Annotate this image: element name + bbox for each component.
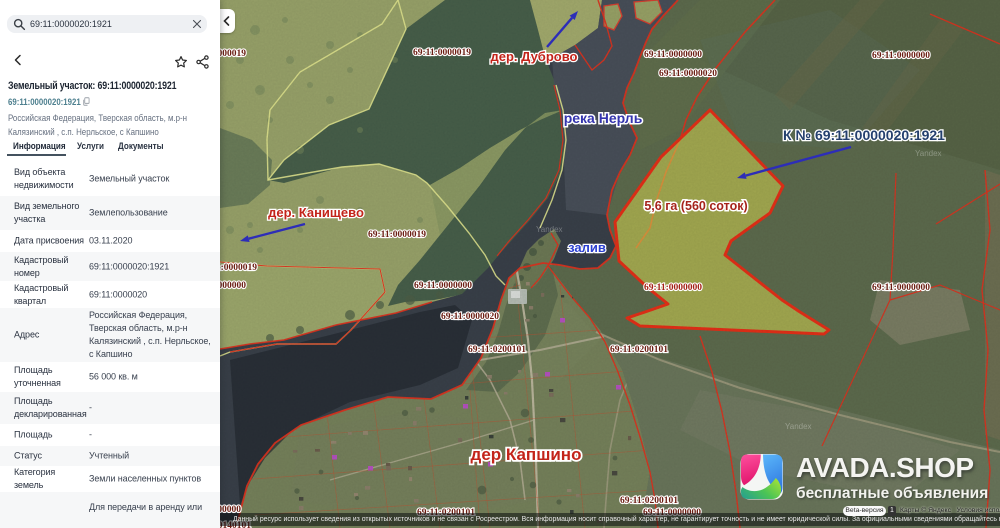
svg-text:69:11:0000000: 69:11:0000000 <box>220 281 246 291</box>
svg-text:69:11:0000019: 69:11:0000019 <box>220 49 246 59</box>
svg-text:дер. Канищево: дер. Канищево <box>268 205 364 220</box>
svg-text:69:11:0000000: 69:11:0000000 <box>872 51 930 61</box>
svg-text:залив: залив <box>568 240 606 255</box>
svg-text:69:11:0000000: 69:11:0000000 <box>644 283 702 293</box>
svg-text:Yandex: Yandex <box>915 149 942 158</box>
svg-text:69:11:0000019: 69:11:0000019 <box>368 230 426 240</box>
svg-text:дер. Дуброво: дер. Дуброво <box>491 49 578 64</box>
svg-text:Yandex: Yandex <box>536 225 563 234</box>
svg-text:Yandex: Yandex <box>785 422 812 431</box>
svg-text:К № 69:11:0000020:1921: К № 69:11:0000020:1921 <box>783 127 945 143</box>
svg-text:69:11:0000019: 69:11:0000019 <box>220 263 257 273</box>
svg-text:69:11:0000019: 69:11:0000019 <box>413 48 471 58</box>
svg-text:69:11:0200101: 69:11:0200101 <box>620 496 678 506</box>
svg-text:69:11:0000000: 69:11:0000000 <box>414 281 472 291</box>
svg-text:река Нерль: река Нерль <box>564 110 643 126</box>
svg-text:69:11:0000000: 69:11:0000000 <box>872 283 930 293</box>
svg-text:дер Капшино: дер Капшино <box>471 445 582 464</box>
svg-text:69:11:0200101: 69:11:0200101 <box>468 345 526 355</box>
svg-text:69:11:0000020: 69:11:0000020 <box>659 69 717 79</box>
svg-text:5,6 га (560 соток): 5,6 га (560 соток) <box>644 199 747 213</box>
svg-text:69:11:0200101: 69:11:0200101 <box>610 345 668 355</box>
svg-text:69:11:0000000: 69:11:0000000 <box>644 50 702 60</box>
svg-text:69:11:0000020: 69:11:0000020 <box>441 312 499 322</box>
